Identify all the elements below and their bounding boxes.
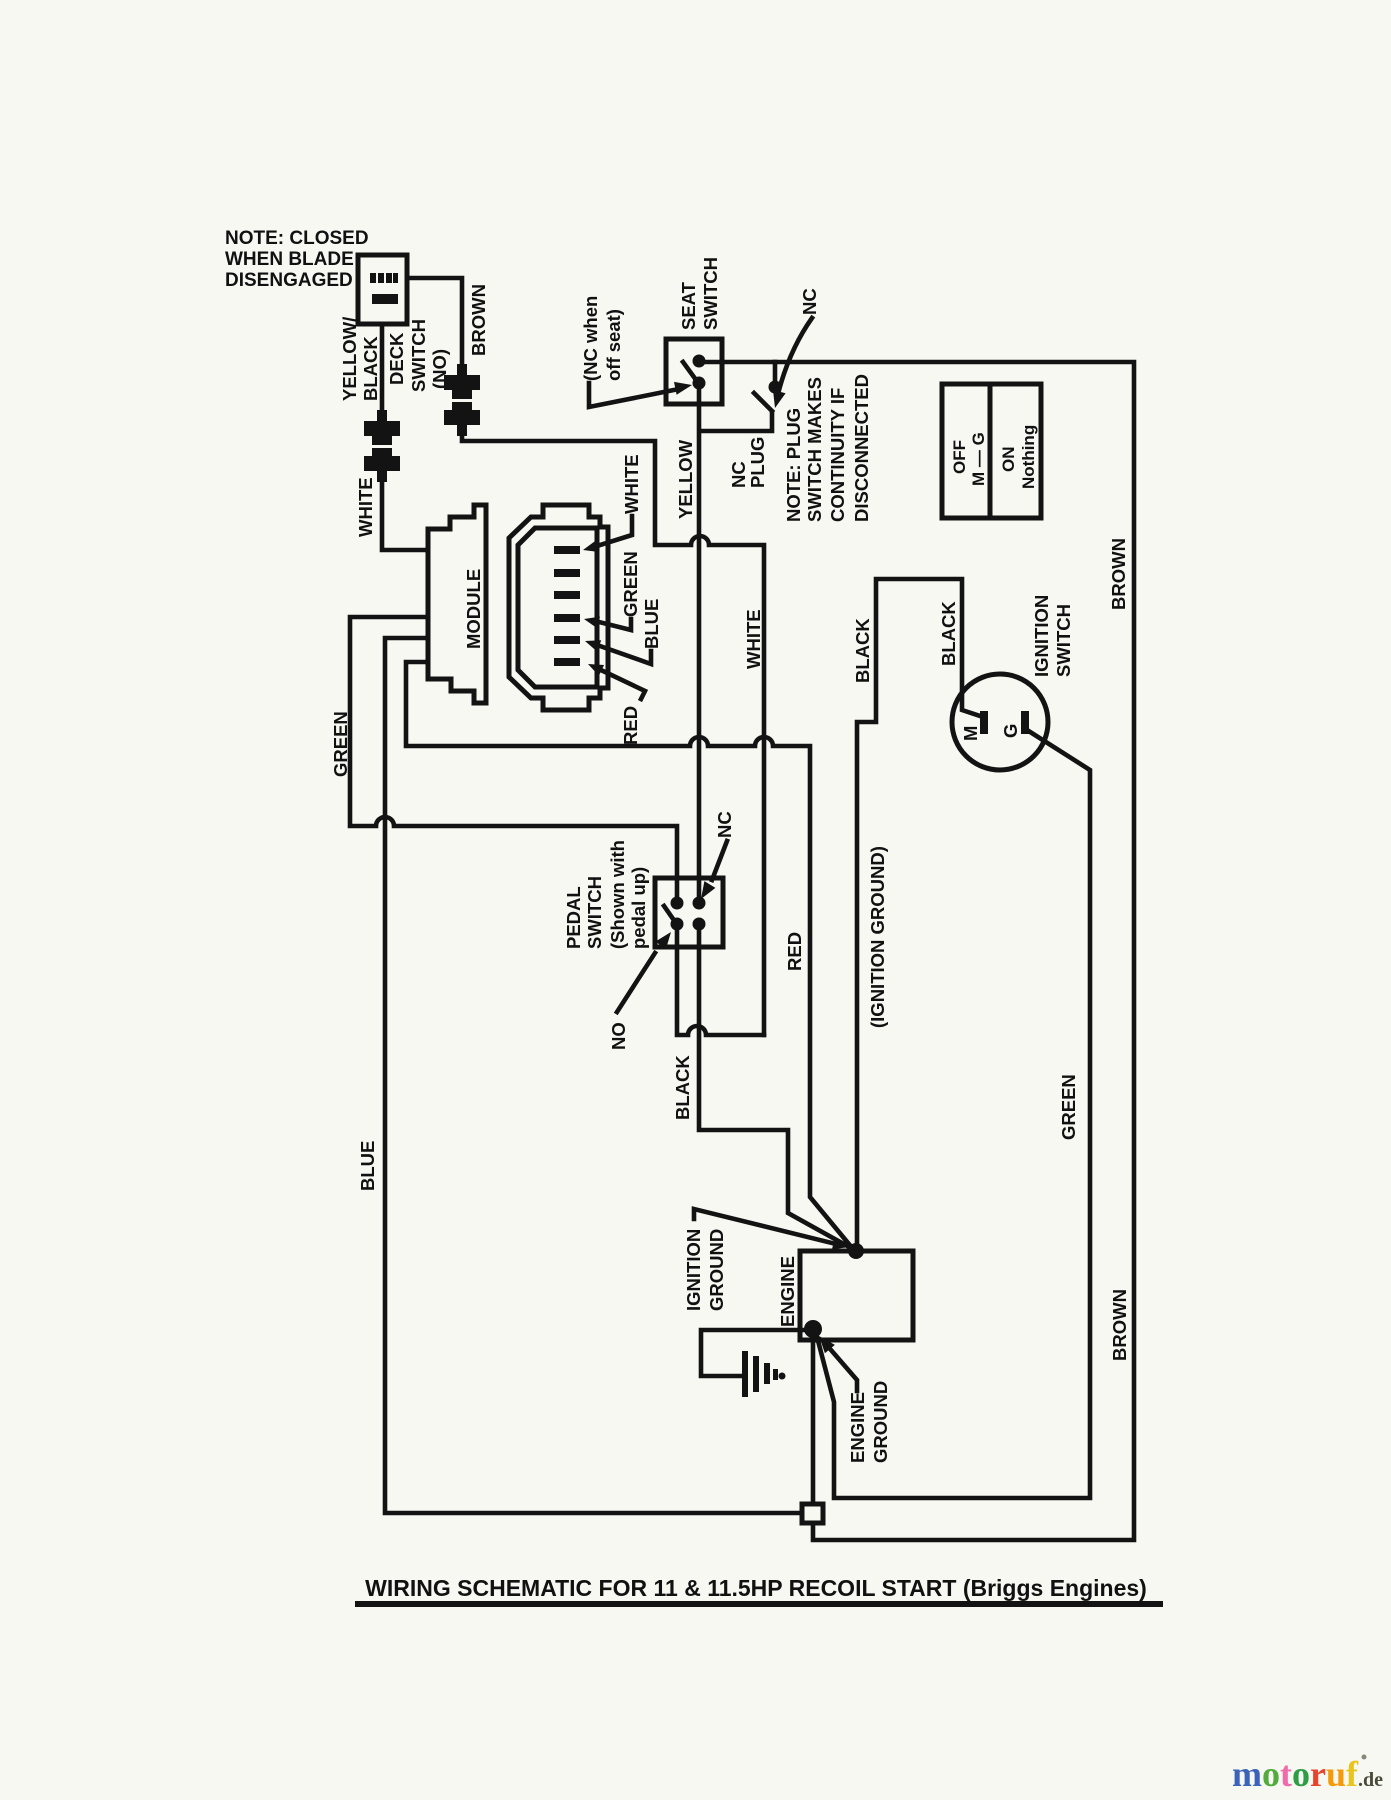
svg-text:BLACK: BLACK [672, 1055, 693, 1120]
svg-text:NC: NC [728, 461, 749, 488]
svg-text:PEDAL: PEDAL [563, 886, 584, 949]
svg-text:GREEN: GREEN [330, 711, 351, 777]
svg-text:(IGNITION GROUND): (IGNITION GROUND) [867, 846, 888, 1028]
svg-text:NC: NC [799, 288, 820, 315]
svg-text:BLACK: BLACK [852, 618, 873, 683]
svg-text:NO: NO [608, 1022, 629, 1050]
svg-text:WIRING SCHEMATIC FOR 11 & 11.5: WIRING SCHEMATIC FOR 11 & 11.5HP RECOIL … [365, 1575, 1147, 1601]
svg-text:off seat): off seat) [603, 309, 624, 381]
svg-text:BROWN: BROWN [468, 284, 489, 356]
svg-text:BLUE: BLUE [641, 599, 662, 649]
svg-text:SWITCH: SWITCH [1053, 604, 1074, 677]
svg-text:SWITCH: SWITCH [408, 319, 429, 392]
svg-text:GREEN: GREEN [1058, 1074, 1079, 1140]
svg-text:ON: ON [999, 447, 1018, 473]
svg-text:NOTE: CLOSED: NOTE: CLOSED [225, 228, 369, 249]
svg-text:WHITE: WHITE [621, 454, 642, 514]
svg-text:WHITE: WHITE [743, 609, 764, 669]
svg-text:(Shown with: (Shown with [607, 840, 628, 949]
svg-text:ENGINE: ENGINE [847, 1392, 868, 1463]
svg-text:pedal up): pedal up) [628, 867, 649, 949]
svg-text:DISENGAGED: DISENGAGED [225, 270, 353, 291]
svg-text:CONTINUITY IF: CONTINUITY IF [827, 388, 848, 522]
svg-text:RED: RED [784, 932, 805, 971]
svg-text:GROUND: GROUND [870, 1381, 891, 1463]
svg-text:WHEN BLADE: WHEN BLADE [225, 249, 354, 270]
svg-text:GROUND: GROUND [706, 1229, 727, 1311]
svg-text:(NC when: (NC when [580, 296, 601, 381]
svg-text:SEAT: SEAT [678, 281, 699, 330]
svg-text:BLACK: BLACK [360, 336, 381, 401]
svg-text:Nothing: Nothing [1019, 425, 1038, 489]
svg-text:ENGINE: ENGINE [777, 1256, 798, 1327]
svg-text:BLACK: BLACK [938, 601, 959, 666]
svg-text:BLUE: BLUE [357, 1141, 378, 1191]
svg-text:DISCONNECTED: DISCONNECTED [851, 374, 872, 522]
svg-text:PLUG: PLUG [747, 437, 768, 488]
svg-text:M — G: M — G [969, 432, 988, 486]
svg-text:YELLOW: YELLOW [675, 439, 696, 519]
svg-text:NOTE: PLUG: NOTE: PLUG [783, 408, 804, 522]
svg-text:BROWN: BROWN [1108, 538, 1129, 610]
svg-text:YELLOW/: YELLOW/ [339, 317, 360, 401]
svg-text:RED: RED [620, 706, 641, 745]
svg-text:WHITE: WHITE [355, 477, 376, 537]
svg-text:G: G [1000, 724, 1021, 738]
svg-text:DECK: DECK [386, 332, 407, 385]
svg-text:OFF: OFF [950, 440, 969, 474]
svg-text:M: M [960, 726, 981, 741]
svg-text:SWITCH: SWITCH [584, 876, 605, 949]
svg-text:SWITCH MAKES: SWITCH MAKES [804, 377, 825, 522]
svg-text:IGNITION: IGNITION [1031, 595, 1052, 677]
svg-text:SWITCH: SWITCH [700, 257, 721, 330]
svg-text:GREEN: GREEN [620, 551, 641, 617]
svg-text:MODULE: MODULE [463, 569, 484, 649]
svg-text:IGNITION: IGNITION [683, 1229, 704, 1311]
svg-text:BROWN: BROWN [1109, 1289, 1130, 1361]
svg-text:NC: NC [714, 811, 735, 838]
